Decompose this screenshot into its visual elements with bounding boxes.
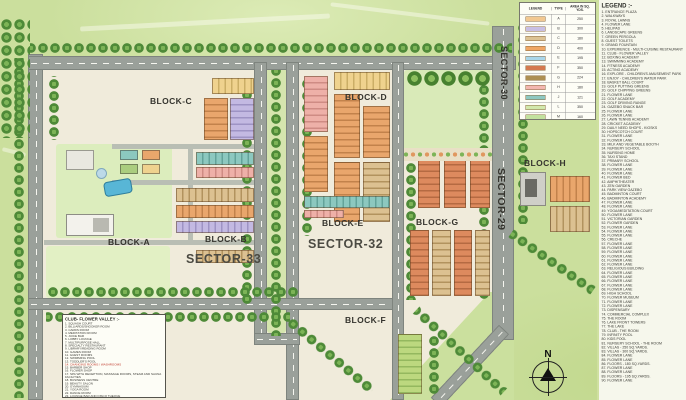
legend-table-row: A 250 xyxy=(520,15,595,25)
block-d-housing xyxy=(363,162,390,222)
block-g-housing xyxy=(475,230,490,296)
legend-type: H xyxy=(551,83,566,92)
legend-color-swatch xyxy=(526,36,546,41)
block-c-housing xyxy=(196,152,254,165)
block-g-housing xyxy=(444,158,466,208)
label-sector-32: SECTOR-32 xyxy=(308,237,383,251)
block-c-housing xyxy=(230,98,254,140)
label-block-c: BLOCK-C xyxy=(150,96,192,106)
road-top xyxy=(28,56,516,70)
block-c-housing xyxy=(176,205,254,218)
block-d-housing xyxy=(304,76,328,132)
block-d-housing xyxy=(334,72,390,90)
block-c-housing xyxy=(212,78,254,94)
label-block-a: BLOCK-A xyxy=(108,237,150,247)
block-g-housing xyxy=(418,158,440,208)
road-central-east xyxy=(286,62,299,400)
legend-color-swatch xyxy=(526,75,546,80)
masterplan-canvas: BLOCK-C BLOCK-D BLOCK-A BLOCK-B BLOCK-E … xyxy=(0,0,686,400)
block-d-housing xyxy=(363,106,390,158)
label-block-h: BLOCK-H xyxy=(524,158,566,168)
club-pavilion xyxy=(66,150,94,170)
legend-color-swatch xyxy=(526,56,546,61)
legend-type: A xyxy=(551,15,566,24)
legend-table-row: M 160 xyxy=(520,112,595,120)
legend-area: 224 xyxy=(566,76,594,80)
legend-area: 400 xyxy=(566,47,594,51)
legend-area: 195 xyxy=(566,57,594,61)
legend-color-swatch xyxy=(526,115,546,120)
street-block-c xyxy=(112,144,254,149)
legend-table: LEGEND TYPE AREA IN SQ. YDS. A 250 B 3 xyxy=(519,2,596,120)
compass-needle-icon xyxy=(540,368,556,381)
label-sector-29: SECTOR-29 xyxy=(495,168,507,230)
tree-grove xyxy=(0,18,30,138)
legend-area: 350 xyxy=(566,66,594,70)
clubhouse-building xyxy=(66,214,114,236)
sports-court xyxy=(142,150,160,160)
legend-table-header-type: TYPE xyxy=(551,7,566,11)
tree-row-large xyxy=(405,70,492,87)
tree-row xyxy=(46,286,300,298)
label-block-f: BLOCK-F xyxy=(345,315,386,325)
legend-color-swatch xyxy=(526,17,546,22)
legend-color-swatch xyxy=(526,85,546,90)
sports-court xyxy=(142,164,160,174)
label-block-b: BLOCK-B xyxy=(205,234,247,244)
sports-court xyxy=(120,150,138,160)
legend-table-row: F 350 xyxy=(520,63,595,73)
tree-row xyxy=(30,42,512,54)
legend-table-row: D 400 xyxy=(520,44,595,54)
legend-area: 121 xyxy=(566,96,594,100)
legend-type: C xyxy=(551,34,566,43)
grand-fountain xyxy=(96,168,107,179)
block-c-housing xyxy=(176,188,254,202)
legend-type: M xyxy=(551,112,566,120)
label-sector-33: SECTOR-33 xyxy=(186,252,261,266)
legend-type: E xyxy=(551,54,566,63)
legend-type: B xyxy=(551,24,566,33)
label-block-e: BLOCK-E xyxy=(322,218,364,228)
legend-panel: LEGEND :- ENTRANCE PLAZAWALKWAYSROYAL LA… xyxy=(597,0,686,400)
compass-dial xyxy=(532,361,564,393)
legend-area: 180 xyxy=(566,37,594,41)
block-c-housing xyxy=(196,167,254,178)
block-d-housing xyxy=(304,136,328,192)
legend-table-row: J 121 xyxy=(520,93,595,103)
block-e-housing xyxy=(304,210,344,218)
legend-type: L xyxy=(551,103,566,112)
compass-rose: N xyxy=(530,350,566,398)
block-b-housing xyxy=(176,221,254,233)
block-d-housing xyxy=(334,94,360,158)
legend-list: ENTRANCE PLAZAWALKWAYSROYAL LAWNSFLOWER … xyxy=(602,11,686,384)
block-c-housing xyxy=(204,98,228,140)
legend-table-row: G 224 xyxy=(520,73,595,83)
legend-type: J xyxy=(551,93,566,102)
legend-color-swatch xyxy=(526,26,546,31)
road-bottom xyxy=(28,298,393,310)
road-left xyxy=(28,54,43,400)
block-g-housing xyxy=(410,230,429,296)
legend-table-header-legend: LEGEND xyxy=(520,7,551,11)
block-g-housing xyxy=(432,230,451,296)
club-box-title: CLUB- FLOWER VALLEY :- xyxy=(65,317,165,322)
label-block-d: BLOCK-D xyxy=(345,92,387,102)
legend-area: 300 xyxy=(566,27,594,31)
legend-area: 180 xyxy=(566,86,594,90)
block-h-housing xyxy=(550,176,590,202)
tree-row xyxy=(428,334,440,396)
legend-table-row: E 195 xyxy=(520,54,595,64)
legend-type: D xyxy=(551,44,566,53)
street-block-c xyxy=(112,180,254,185)
legend-area: 160 xyxy=(566,115,594,119)
legend-item: FLOWER LANE xyxy=(602,379,686,383)
golf-putting-greens-strip xyxy=(404,148,492,161)
legend-table-header-area: AREA IN SQ. YDS. xyxy=(566,5,594,12)
club-amenities-box: CLUB- FLOWER VALLEY :- SQUASH COURTBILLI… xyxy=(62,314,166,398)
legend-color-swatch xyxy=(526,66,546,71)
block-h-tower xyxy=(520,172,546,206)
legend-table-row: H 180 xyxy=(520,83,595,93)
legend-color-swatch xyxy=(526,46,546,51)
club-amenities-list: SQUASH COURTBILLIARDS/SNOOKER ROOMCARDS … xyxy=(65,323,165,399)
legend-area: 350 xyxy=(566,106,594,110)
block-e-housing xyxy=(304,196,390,208)
legend-type: G xyxy=(551,73,566,82)
legend-area: 250 xyxy=(566,17,594,21)
block-h-housing xyxy=(550,206,590,232)
tree-row xyxy=(48,76,60,140)
legend-table-row: C 180 xyxy=(520,34,595,44)
label-sector-30: SECTOR-30 xyxy=(499,46,509,100)
block-f-buildings xyxy=(398,334,422,394)
legend-table-row: B 300 xyxy=(520,24,595,34)
legend-table-row: L 350 xyxy=(520,103,595,113)
legend-title: LEGEND :- xyxy=(602,2,686,9)
club-amenity-item: LOUNGE BAR AND DISCO THEQUE xyxy=(65,395,165,398)
block-g-housing xyxy=(470,158,490,208)
sports-court xyxy=(120,164,138,174)
legend-color-swatch xyxy=(526,105,546,110)
legend-table-header: LEGEND TYPE AREA IN SQ. YDS. xyxy=(520,3,595,15)
block-g-housing xyxy=(454,230,472,296)
legend-color-swatch xyxy=(526,95,546,100)
legend-type: F xyxy=(551,63,566,72)
label-block-g: BLOCK-G xyxy=(416,217,458,227)
